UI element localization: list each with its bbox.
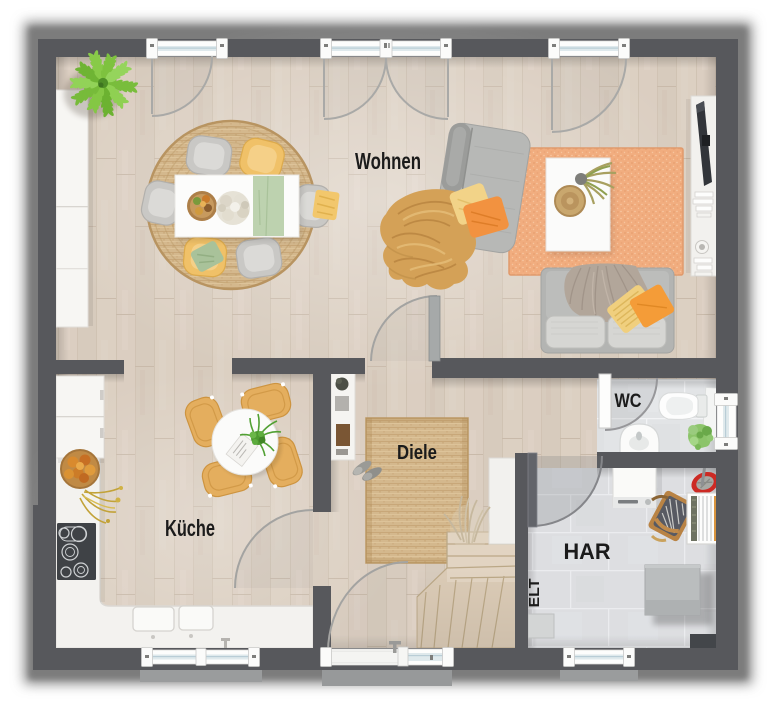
svg-text:Wohnen: Wohnen (355, 148, 421, 174)
svg-text:WC: WC (615, 391, 642, 412)
svg-text:HAR: HAR (564, 539, 611, 564)
svg-text:ELT: ELT (527, 578, 543, 607)
svg-text:Küche: Küche (165, 515, 215, 541)
svg-text:Diele: Diele (397, 442, 437, 464)
